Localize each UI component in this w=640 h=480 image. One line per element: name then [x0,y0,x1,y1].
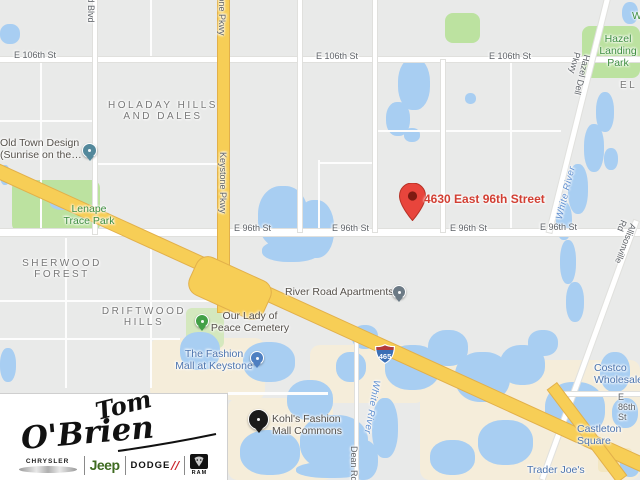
brand-divider [84,456,85,475]
poi-costco-wholesale[interactable]: Costco Wholesale [594,362,640,386]
chrysler-logo: CHRYSLER [17,458,79,473]
street-keystone-pkwy: Keystone Pkwy [218,152,228,214]
hood-partial-el: EL [620,80,637,91]
ram-wordmark: RAM [192,470,208,476]
chrysler-wordmark: CHRYSLER [26,458,70,465]
street-dean-rd: Dean Rd [349,446,359,480]
poi-fashion-mall-keystone[interactable]: The Fashion Mall at Keystone [175,348,253,372]
poi-our-lady-of-peace-cemetery[interactable]: Our Lady of Peace Cemetery [211,310,289,334]
water-white-river-south: White River [362,379,382,435]
brand-divider [125,456,126,475]
hood-driftwood-hills: DRIFTWOOD HILLS [102,306,186,328]
poi-river-road-apartments[interactable]: River Road Apartments [285,286,394,298]
poi-river-road-apartments-pin[interactable] [392,285,406,299]
dodge-wordmark: DODGE [131,460,171,471]
street-e-86th-st: E 86th St [618,392,640,422]
interstate-465-shield: 465 [374,344,396,364]
dodge-logo: DODGE ∕∕ [131,459,180,472]
map-viewport[interactable]: 465 E 106th StE 106th StE 106th StE 96th… [0,0,640,480]
dodge-slashes-icon: ∕∕ [171,459,179,472]
brand-logo-row: CHRYSLER Jeep DODGE ∕∕ RAM [2,451,223,479]
shield-route-number: 465 [379,352,392,361]
jeep-wordmark: Jeep [90,457,120,473]
brand-divider [184,456,185,475]
street-hazel-dell-pkwy: Hazel Dell Pkwy [561,51,592,102]
street-e-106th-st-2: E 106th St [316,51,358,61]
street-keystone-pkwy-top: Keystone Pkwy [217,0,227,36]
poi-castleton-square[interactable]: Castleton Square [577,423,640,447]
map-marker-pin[interactable] [399,183,426,221]
street-allisonville-rd: Allisonville Rd [604,219,638,265]
dealer-logo-box: Tom O'Brien CHRYSLER Jeep DODGE ∕∕ [0,393,228,480]
dealer-script-logo: Tom O'Brien [0,394,227,454]
street-e-106th-st-1: E 106th St [14,50,56,60]
park-lenape-trace: Lenape Trace Park [64,203,115,227]
poi-fashion-mall-keystone-pin[interactable] [250,351,264,365]
poi-old-town-design[interactable]: Old Town Design (Sunrise on the… [0,137,82,161]
park-hazel-landing: Hazel Landing Park [599,33,636,69]
street-e-96th-st-3: E 96th St [450,223,487,233]
street-e-96th-st-1: E 96th St [234,223,271,233]
marker-address-label[interactable]: 4630 East 96th Street [424,192,545,206]
park-partial-w: W [632,10,640,22]
ram-logo: RAM [190,454,208,476]
chrysler-wing-icon [19,466,77,473]
hood-holaday-hills: HOLADAY HILLS AND DALES [108,100,218,122]
poi-our-lady-of-peace-cemetery-pin[interactable] [195,314,209,328]
poi-kohls-fashion-mall-commons-pin[interactable] [248,409,269,430]
poi-kohls-fashion-mall-commons[interactable]: Kohl's Fashion Mall Commons [272,413,342,437]
street-e-96th-st-2: E 96th St [332,223,369,233]
street-e-96th-st-4: E 96th St [540,222,577,232]
street-e-106th-st-3: E 106th St [489,51,531,61]
dealer-name-bottom: O'Brien [20,410,156,454]
poi-old-town-design-pin[interactable] [82,143,97,158]
water-white-river-north: White River [554,165,578,221]
ram-head-icon [190,454,208,469]
hood-sherwood-forest: SHERWOOD FOREST [22,258,102,280]
poi-trader-joes[interactable]: Trader Joe's [527,464,585,476]
street-field-blvd: field Blvd [86,0,96,23]
